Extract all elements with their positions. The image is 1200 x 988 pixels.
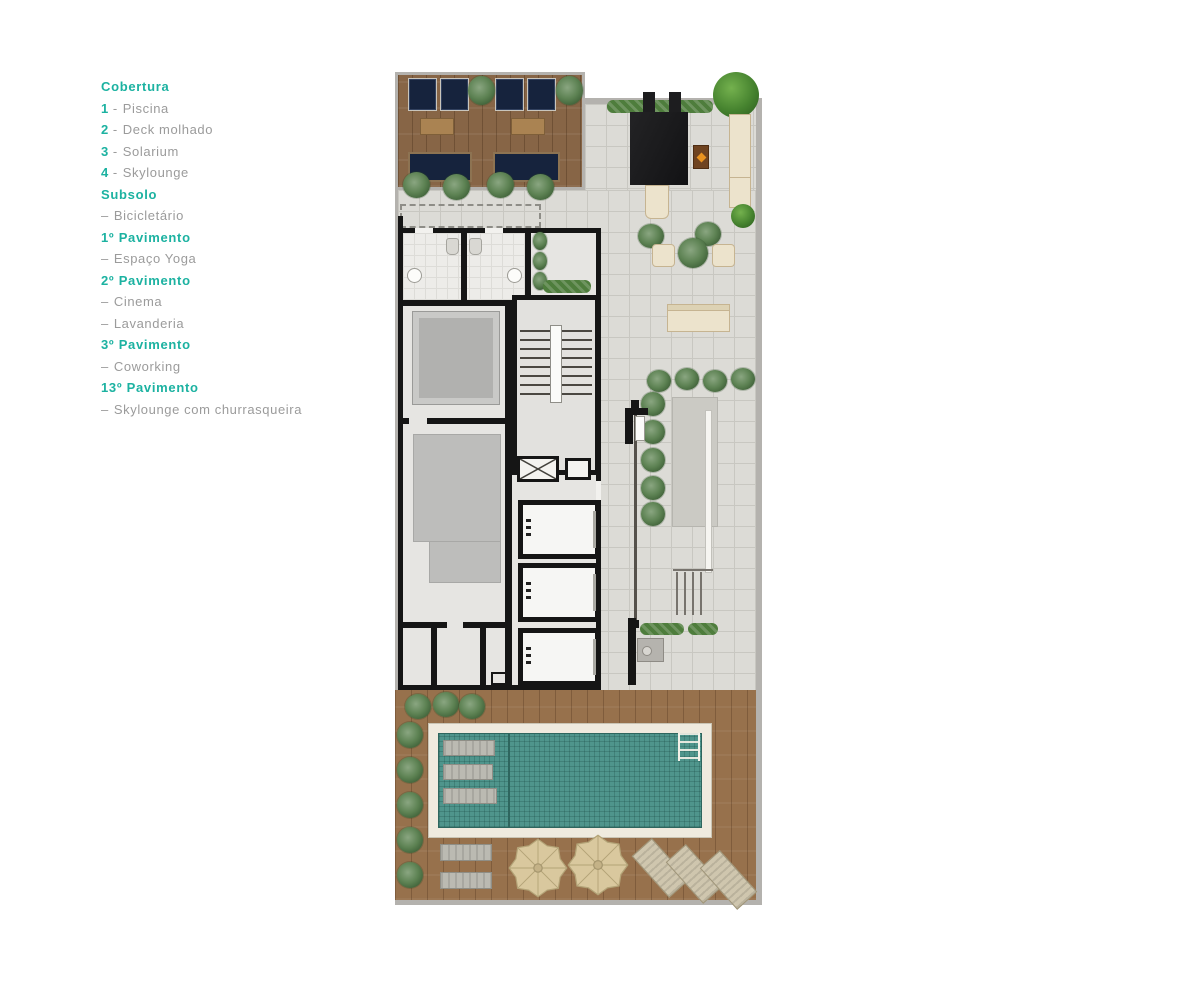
plant — [527, 174, 554, 200]
plant — [397, 757, 423, 783]
sofa-backrest — [668, 305, 729, 311]
bench-slat — [692, 572, 694, 615]
plant — [641, 476, 665, 500]
flame-icon — [697, 153, 707, 163]
plant — [675, 368, 699, 390]
plant — [459, 694, 485, 719]
legend-entry-label: Cobertura — [101, 79, 169, 94]
stair-landing — [550, 325, 562, 403]
legend-entry: 1 - Piscina — [101, 98, 401, 120]
toilet — [446, 238, 459, 255]
door-opening — [415, 228, 433, 233]
sink — [507, 268, 522, 283]
bench-slat — [676, 572, 678, 615]
legend-entry: – Lavanderia — [101, 313, 401, 335]
legend-entry-separator: – — [101, 251, 109, 266]
legend-entry-label: Bicicletário — [114, 208, 184, 223]
legend-entry-separator: - — [113, 144, 118, 159]
legend: Cobertura 1 - Piscina 2 - Deck molhado 3… — [101, 76, 401, 420]
shade-canopy — [630, 112, 688, 185]
elevator — [518, 563, 600, 622]
reservoir — [413, 434, 501, 542]
plant — [641, 502, 665, 526]
plant — [703, 370, 727, 392]
lounge-chair — [409, 79, 436, 110]
wall — [398, 216, 403, 228]
water-tank — [413, 312, 499, 404]
legend-entry-label: Subsolo — [101, 187, 157, 202]
column — [631, 400, 639, 408]
elevator-door — [593, 639, 596, 675]
hedge — [688, 623, 718, 635]
plan-frame-bottom — [395, 900, 762, 905]
elevator — [518, 628, 600, 686]
legend-entry-label: Skylounge com churrasqueira — [114, 402, 302, 417]
plant — [731, 368, 755, 390]
toilet — [469, 238, 482, 255]
sun-lounger — [440, 844, 492, 861]
plant — [487, 172, 514, 198]
plant — [443, 174, 470, 200]
legend-entry: – Coworking — [101, 356, 401, 378]
lounge-chair — [528, 79, 555, 110]
service-shaft — [565, 458, 591, 480]
legend-entry: – Cinema — [101, 291, 401, 313]
wall — [431, 622, 437, 690]
legend-entry: Cobertura — [101, 76, 401, 98]
outdoor-sofa — [667, 304, 730, 332]
legend-entry: 13º Pavimento — [101, 377, 401, 399]
legend-entry-label: Deck molhado — [123, 122, 213, 137]
legend-entry-separator: – — [101, 294, 109, 309]
legend-entry-number: 2 — [101, 122, 109, 137]
door-leaf — [635, 416, 645, 441]
plant — [397, 792, 423, 818]
plant — [468, 76, 495, 105]
elevator-door — [593, 511, 596, 548]
barbecue — [637, 638, 664, 662]
page: { "palette": { "accent_teal": "#1cb2a1",… — [0, 0, 1200, 988]
door-opening — [447, 622, 463, 628]
legend-entry-label: 3º Pavimento — [101, 337, 191, 352]
legend-entry-separator: - — [113, 122, 118, 137]
plant — [533, 232, 547, 250]
door-opening — [596, 481, 601, 500]
wet-deck-lounger — [443, 740, 495, 756]
legend-entry: 3 - Solarium — [101, 141, 401, 163]
wall — [525, 233, 531, 300]
legend-entry-label: 2º Pavimento — [101, 273, 191, 288]
x-brace-icon — [520, 459, 556, 479]
floor-plan — [395, 72, 762, 905]
legend-entry-separator: – — [101, 316, 109, 331]
plant — [403, 172, 430, 198]
legend-entry-number: 3 — [101, 144, 109, 159]
legend-entry-number: 4 — [101, 165, 109, 180]
plant — [397, 862, 423, 888]
legend-entry: 2 - Deck molhado — [101, 119, 401, 141]
legend-entry: 4 - Skylounge — [101, 162, 401, 184]
legend-entry-separator: - — [113, 101, 118, 116]
stair-treads — [561, 330, 592, 398]
legend-entry-label: Coworking — [114, 359, 181, 374]
plant — [647, 370, 671, 392]
plant — [556, 76, 583, 105]
legend-entry: Subsolo — [101, 184, 401, 206]
plant — [533, 252, 547, 270]
parasol-icon — [508, 838, 568, 898]
fire-pit — [693, 145, 709, 169]
hedge — [543, 280, 591, 293]
chaise-lounge — [729, 114, 751, 208]
legend-entry-label: 1º Pavimento — [101, 230, 191, 245]
wet-deck-lounger — [443, 788, 497, 804]
bench-slat — [700, 572, 702, 615]
bush — [713, 72, 759, 118]
wet-deck-lounger — [443, 764, 493, 780]
plant — [397, 827, 423, 853]
door-opening — [485, 228, 503, 233]
legend-entry: 3º Pavimento — [101, 334, 401, 356]
legend-entry-number: 1 — [101, 101, 109, 116]
plant — [405, 694, 431, 719]
sun-lounger — [440, 872, 492, 889]
legend-entry-separator: – — [101, 208, 109, 223]
legend-entry-label: 13º Pavimento — [101, 380, 199, 395]
elevator-door — [593, 574, 596, 611]
legend-entry-label: Skylounge — [123, 165, 189, 180]
legend-entry-label: Lavanderia — [114, 316, 184, 331]
legend-entry: – Espaço Yoga — [101, 248, 401, 270]
pouf-seat — [712, 244, 735, 267]
ventilation-shaft — [517, 456, 559, 482]
barbecue-burner — [642, 646, 652, 656]
dashed-boundary — [400, 204, 541, 228]
pool-ladder — [678, 733, 700, 761]
hedge — [640, 623, 684, 635]
legend-entry-label: Espaço Yoga — [114, 251, 197, 266]
bar-table — [420, 118, 454, 135]
elevator-vents — [526, 647, 531, 665]
wall — [461, 233, 467, 300]
legend-entry-label: Piscina — [123, 101, 169, 116]
legend-entry: – Skylounge com churrasqueira — [101, 399, 401, 421]
lounge-chair — [496, 79, 523, 110]
plant — [641, 448, 665, 472]
elevator-vents — [526, 582, 531, 600]
lounge-chair — [441, 79, 468, 110]
legend-entry: – Bicicletário — [101, 205, 401, 227]
legend-entry-separator: - — [113, 165, 118, 180]
wall — [625, 408, 633, 444]
door-opening — [409, 418, 427, 424]
parasol-icon — [567, 834, 629, 896]
wall — [480, 622, 486, 690]
reservoir — [429, 541, 501, 583]
chaise-divider — [730, 177, 750, 178]
legend-entry-separator: – — [101, 402, 109, 417]
legend-entry-label: Solarium — [123, 144, 179, 159]
plan-frame-right — [756, 98, 762, 905]
elevator-vents — [526, 519, 531, 537]
legend-entry: 1º Pavimento — [101, 227, 401, 249]
legend-entry: 2º Pavimento — [101, 270, 401, 292]
sink — [407, 268, 422, 283]
planter-wall — [705, 410, 712, 573]
plant — [433, 692, 459, 717]
elevator — [518, 500, 600, 559]
plant — [397, 722, 423, 748]
bench-rail — [673, 569, 713, 571]
legend-entry-separator: – — [101, 359, 109, 374]
pouf-seat — [652, 244, 675, 267]
lounge-chair — [645, 185, 669, 219]
plant — [678, 238, 708, 268]
legend-entry-label: Cinema — [114, 294, 162, 309]
wall — [628, 618, 636, 685]
stair-treads — [520, 330, 551, 398]
bush — [731, 204, 755, 228]
shelf — [491, 672, 507, 685]
bar-table — [511, 118, 545, 135]
wet-deck-divider — [508, 733, 510, 828]
bench-slat — [684, 572, 686, 615]
